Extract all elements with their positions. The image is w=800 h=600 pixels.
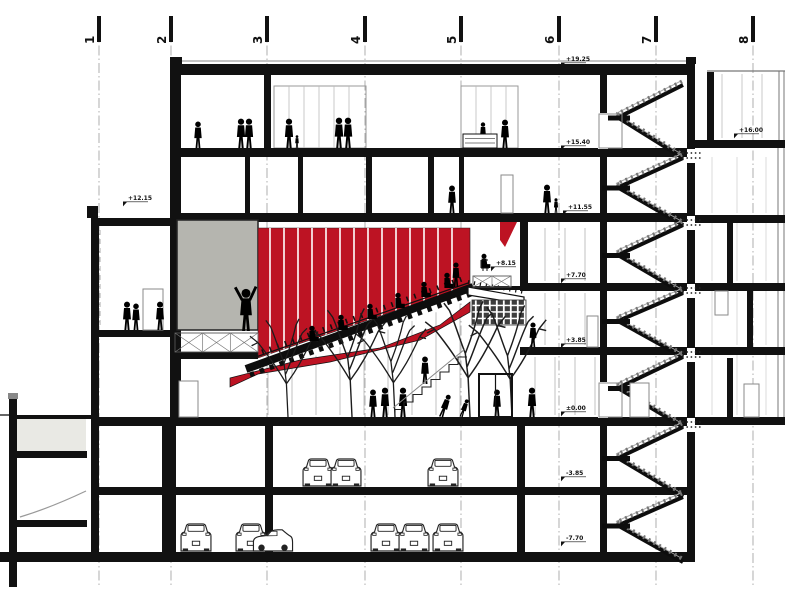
annex-roof bbox=[91, 218, 175, 226]
hatch-dot bbox=[682, 287, 684, 289]
grid-axis-label: 1 bbox=[83, 36, 97, 44]
partition bbox=[428, 157, 434, 213]
hatch-dot bbox=[691, 351, 693, 353]
elevation-label: +3.85 bbox=[566, 337, 586, 344]
hatch-dot bbox=[695, 224, 697, 226]
wall-gap bbox=[687, 418, 695, 432]
elevation-arrow bbox=[123, 202, 127, 207]
door bbox=[630, 383, 649, 417]
roof-slab bbox=[170, 64, 695, 75]
parapet-right bbox=[686, 57, 696, 64]
hatch-dot bbox=[691, 157, 693, 159]
person-stand bbox=[132, 304, 139, 330]
person-stand bbox=[448, 186, 456, 213]
car-rear bbox=[433, 524, 463, 551]
atrium-stair-railing bbox=[393, 349, 465, 408]
hatch-dot bbox=[686, 219, 688, 221]
hatch-dot bbox=[699, 356, 701, 358]
grid-axis-label: 8 bbox=[737, 36, 751, 44]
elevation-label: +15.40 bbox=[566, 139, 590, 146]
hatch-dot bbox=[682, 224, 684, 226]
hatch-dot bbox=[682, 356, 684, 358]
hatch-dot bbox=[699, 421, 701, 423]
person-stand bbox=[344, 118, 352, 148]
hatch-dot bbox=[695, 152, 697, 154]
hatch-dot bbox=[691, 292, 693, 294]
grid-axis-label: 7 bbox=[640, 36, 654, 44]
elevation-arrow bbox=[561, 412, 565, 417]
parked-cars bbox=[181, 459, 463, 551]
person-stand bbox=[493, 390, 501, 417]
tree bbox=[356, 316, 426, 417]
elevation-label: -3.85 bbox=[566, 470, 583, 477]
grid-tick bbox=[169, 16, 173, 42]
hatch-dot bbox=[686, 356, 688, 358]
stair-steps bbox=[617, 222, 682, 252]
stair-flight bbox=[618, 293, 683, 321]
grid-tick bbox=[97, 16, 101, 42]
ramp-slab-upper bbox=[17, 451, 87, 458]
atrium-stair bbox=[395, 357, 467, 417]
hatch-dot bbox=[695, 292, 697, 294]
stair-steps bbox=[617, 155, 682, 185]
hatch-dot bbox=[691, 219, 693, 221]
mosaic-wall bbox=[472, 300, 526, 325]
rooftop-box-wall bbox=[707, 72, 714, 140]
ramp-slab-lower bbox=[17, 520, 87, 527]
stair-flight bbox=[618, 357, 683, 388]
stair-shaft-right-wall bbox=[687, 64, 695, 552]
hatch-dot bbox=[686, 351, 688, 353]
door bbox=[587, 316, 598, 347]
stair-flight bbox=[618, 158, 683, 188]
elevation-arrow bbox=[561, 279, 565, 284]
hatch-dot bbox=[686, 287, 688, 289]
grid-axis-label: 6 bbox=[543, 36, 557, 44]
person-stand bbox=[245, 119, 253, 148]
grid-tick bbox=[654, 16, 658, 42]
stair-landing bbox=[602, 524, 630, 529]
stair-flight bbox=[618, 497, 683, 526]
car-rear bbox=[331, 459, 361, 486]
hatch-dot bbox=[691, 356, 693, 358]
hatch-dot bbox=[695, 426, 697, 428]
hatch-dot bbox=[699, 219, 701, 221]
main-left-wall-basement bbox=[162, 417, 176, 552]
wall-gap bbox=[687, 216, 695, 230]
person-stand bbox=[194, 122, 201, 148]
stair-steps bbox=[617, 290, 682, 318]
grid-tick bbox=[363, 16, 367, 42]
partition bbox=[520, 222, 528, 290]
reception-desk bbox=[463, 134, 497, 148]
hatch-dot bbox=[682, 219, 684, 221]
elevation-label: +16.00 bbox=[739, 127, 763, 134]
elevation-arrow bbox=[491, 267, 495, 272]
grid-axis-label: 5 bbox=[445, 36, 459, 44]
basement-column bbox=[265, 425, 273, 487]
person-child bbox=[554, 198, 558, 213]
stair-steps bbox=[617, 354, 682, 385]
hatch-dot bbox=[691, 287, 693, 289]
hatch-dot bbox=[691, 421, 693, 423]
red-wedge bbox=[500, 222, 517, 247]
architectural-section-drawing: 12345678 bbox=[0, 0, 800, 600]
stair-steps bbox=[617, 82, 682, 115]
stair-flight bbox=[618, 85, 683, 118]
door bbox=[179, 381, 198, 417]
stair-landing bbox=[602, 456, 630, 461]
partition bbox=[747, 291, 753, 347]
hatch-dot bbox=[699, 224, 701, 226]
hatch-dot bbox=[691, 152, 693, 154]
hatch-dot bbox=[699, 157, 701, 159]
stair-steps bbox=[617, 494, 682, 523]
person-stand bbox=[123, 302, 131, 330]
person-child bbox=[295, 135, 299, 148]
section-svg: 12345678 bbox=[0, 0, 800, 600]
person-stand bbox=[501, 120, 509, 148]
bay-slab-3 bbox=[695, 347, 785, 355]
wall-gap bbox=[687, 348, 695, 362]
slab-foundation bbox=[0, 552, 695, 562]
car-rear bbox=[399, 524, 429, 551]
hatch-dot bbox=[686, 157, 688, 159]
retaining-wall-cap bbox=[8, 393, 18, 399]
basement-column bbox=[517, 495, 525, 552]
partition bbox=[727, 223, 733, 283]
car-rear bbox=[428, 459, 458, 486]
hatch-dot bbox=[699, 351, 701, 353]
car-rear bbox=[303, 459, 333, 486]
ramp-area bbox=[17, 417, 86, 451]
grid-tick bbox=[459, 16, 463, 42]
parapet-left bbox=[170, 57, 182, 64]
annex-floor bbox=[91, 330, 175, 337]
person-stand bbox=[335, 118, 343, 148]
structural-walls-and-slabs bbox=[0, 57, 785, 587]
hatch-dot bbox=[695, 421, 697, 423]
partition bbox=[298, 157, 303, 213]
hatch-dot bbox=[691, 224, 693, 226]
elevation-arrow bbox=[734, 134, 738, 139]
hatch-dot bbox=[686, 292, 688, 294]
elevation-label: ±0.00 bbox=[566, 405, 586, 412]
stair-steps bbox=[617, 424, 682, 455]
bay-slab-4 bbox=[695, 417, 785, 425]
hatch-dot bbox=[682, 292, 684, 294]
elevation-label: +19.25 bbox=[566, 56, 590, 63]
hatch-dot bbox=[686, 152, 688, 154]
person-stand bbox=[543, 185, 551, 213]
stair-flight bbox=[618, 225, 683, 255]
person-stand bbox=[237, 119, 245, 148]
door bbox=[744, 384, 759, 417]
hatch-dot bbox=[682, 152, 684, 154]
person-stand bbox=[369, 390, 377, 417]
wall-gap bbox=[687, 149, 695, 163]
elevation-label: +11.55 bbox=[568, 204, 592, 211]
car-rear bbox=[181, 524, 211, 551]
hatch-dot bbox=[699, 292, 701, 294]
bay-roof-slab bbox=[695, 140, 785, 148]
grid-axis-label: 3 bbox=[251, 36, 265, 44]
grid-tick bbox=[751, 16, 755, 42]
hatch-dot bbox=[682, 426, 684, 428]
hatch-dot bbox=[699, 287, 701, 289]
hatch-dot bbox=[686, 224, 688, 226]
person-seated bbox=[481, 254, 490, 268]
car-rear bbox=[371, 524, 401, 551]
elevation-label: +8.15 bbox=[496, 260, 516, 267]
partition bbox=[245, 157, 250, 213]
hatch-dot bbox=[682, 157, 684, 159]
partition-top-floor bbox=[264, 75, 271, 148]
hatch-dot bbox=[695, 356, 697, 358]
stair-landing bbox=[602, 319, 630, 324]
slab-3-85-left bbox=[175, 352, 258, 359]
door bbox=[501, 175, 513, 213]
elevation-arrow bbox=[561, 542, 565, 547]
ramp-curve bbox=[20, 491, 86, 517]
slab-15-40 bbox=[175, 148, 695, 157]
slab-ground-left bbox=[17, 415, 92, 419]
grid-tick bbox=[265, 16, 269, 42]
partition bbox=[727, 358, 733, 417]
bay-slab-1 bbox=[695, 215, 785, 223]
elevation-label: -7.70 bbox=[566, 535, 583, 542]
elevation-label: +12.15 bbox=[128, 195, 152, 202]
annex-parapet bbox=[87, 206, 98, 218]
annex-wall bbox=[91, 218, 99, 552]
hatch-dot bbox=[695, 219, 697, 221]
stair-landing bbox=[602, 186, 630, 191]
hatch-dot bbox=[699, 426, 701, 428]
hatch-dot bbox=[686, 426, 688, 428]
hatch-dot bbox=[686, 421, 688, 423]
hatch-dot bbox=[695, 157, 697, 159]
retaining-wall bbox=[9, 399, 17, 587]
basement-column bbox=[517, 425, 525, 487]
hatch-dot bbox=[682, 351, 684, 353]
elevation-label: +7.70 bbox=[566, 272, 586, 279]
stair-landing bbox=[602, 253, 630, 258]
hatch-dot bbox=[695, 351, 697, 353]
elevation-arrow bbox=[561, 477, 565, 482]
grid-tick bbox=[557, 16, 561, 42]
person-stand bbox=[530, 323, 537, 348]
grid-axis-label: 2 bbox=[155, 36, 169, 44]
wall-gap bbox=[687, 284, 695, 298]
hatch-dot bbox=[682, 421, 684, 423]
bay-slab-2 bbox=[695, 283, 785, 291]
stair-flight bbox=[618, 427, 683, 458]
door bbox=[715, 291, 728, 315]
grid-axis-label: 4 bbox=[349, 36, 363, 44]
partition bbox=[459, 157, 464, 213]
person-bend bbox=[438, 394, 452, 418]
hatch-dot bbox=[699, 152, 701, 154]
hatch-dot bbox=[695, 287, 697, 289]
partition bbox=[366, 157, 372, 213]
hatch-dot bbox=[691, 426, 693, 428]
